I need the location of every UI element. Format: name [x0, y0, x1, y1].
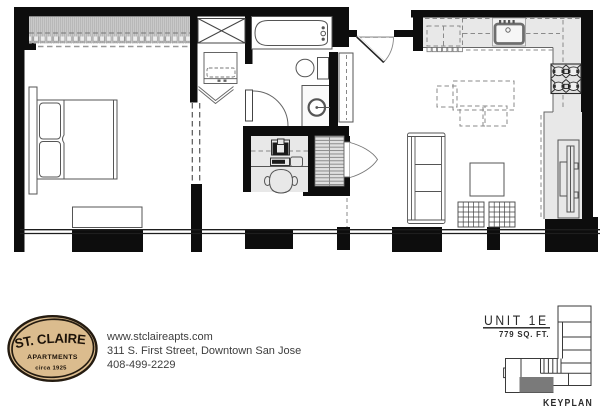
svg-text:779 SQ. FT.: 779 SQ. FT. — [499, 330, 549, 339]
svg-text:APARTMENTS: APARTMENTS — [27, 354, 78, 361]
svg-text:408-499-2229: 408-499-2229 — [107, 359, 176, 371]
svg-text:circa 1925: circa 1925 — [35, 365, 67, 371]
svg-text:311 S. First Street, Downtown: 311 S. First Street, Downtown San Jose — [107, 345, 301, 357]
svg-text:www.stclaireapts.com: www.stclaireapts.com — [106, 331, 213, 343]
svg-text:KEYPLAN: KEYPLAN — [543, 397, 593, 408]
svg-text:UNIT 1E: UNIT 1E — [484, 312, 549, 328]
